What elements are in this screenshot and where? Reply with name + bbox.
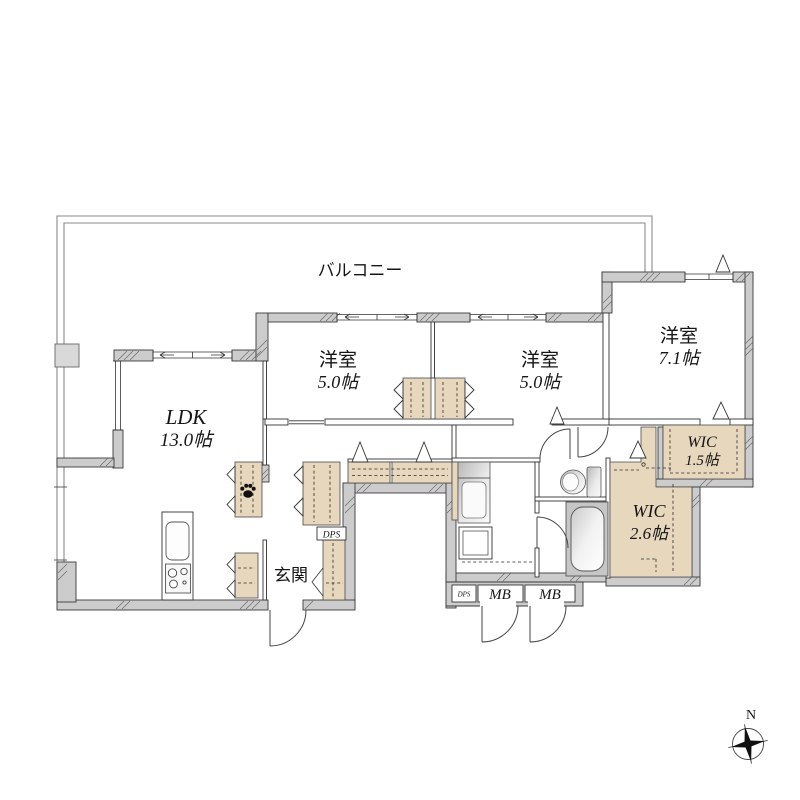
genkan-storage: [323, 540, 345, 600]
room3-size-label: 7.1帖: [659, 348, 703, 368]
entrance-door-arc: [270, 610, 306, 646]
compass-needle-icon: [725, 721, 771, 767]
stove: [166, 564, 191, 593]
room1-closet: [403, 378, 431, 419]
hall-closet-right: [392, 462, 452, 483]
mb2-label: MB: [538, 587, 561, 603]
bath-door-arc: [537, 517, 568, 548]
genkan-storage-doors: [312, 568, 323, 596]
wic2-size-label: 2.6帖: [630, 524, 671, 543]
window-room1-north: [337, 313, 417, 322]
washer-pan: [459, 527, 492, 559]
dps-meter-label: DPS: [457, 591, 471, 599]
floor-plan-drawing: バルコニー LDK 13.0帖 洋室 5.0帖 洋室 5.0帖 洋室 7.1帖 …: [0, 0, 800, 800]
room3-label: 洋室: [660, 325, 698, 347]
kitchen-sink: [166, 522, 189, 560]
room1-size-label: 5.0帖: [318, 372, 362, 392]
washroom-door-arc: [540, 429, 570, 459]
room2-label: 洋室: [521, 349, 559, 371]
compass-n-label: N: [746, 708, 756, 723]
ldk-label: LDK: [165, 405, 208, 429]
pet-cabinet: [235, 462, 262, 517]
bathtub: [566, 502, 608, 576]
dps-hall-label: DPS: [322, 531, 341, 541]
vanity-side-panel: [452, 462, 458, 520]
mb-door-arc-2: [530, 606, 566, 642]
wic1-size-label: 1.5帖: [685, 452, 721, 469]
balcony-label: バルコニー: [318, 261, 403, 280]
window-ldk-north: [153, 350, 232, 361]
room2-size-label: 5.0帖: [520, 372, 564, 392]
ldk-size-label: 13.0帖: [160, 430, 215, 451]
left-window-ticks: [54, 487, 67, 560]
toilet: [561, 467, 602, 497]
compass: [725, 721, 771, 767]
vanity-basin: [462, 482, 486, 518]
window-room2-north: [470, 313, 546, 322]
window-room3-north: [685, 272, 733, 282]
sliding-door-lines: [289, 421, 324, 424]
room2-closet: [435, 378, 465, 419]
floor-plan: バルコニー LDK 13.0帖 洋室 5.0帖 洋室 5.0帖 洋室 7.1帖 …: [0, 0, 800, 800]
mb-door-arc-1: [482, 606, 518, 642]
window-ldk-west: [113, 361, 123, 430]
room1-label: 洋室: [319, 349, 357, 371]
genkan-label: 玄関: [274, 566, 308, 585]
room3-door-arc: [578, 427, 608, 457]
shoe-cabinet: [235, 553, 258, 598]
mb1-label: MB: [488, 587, 511, 603]
wic1-label: WIC: [687, 434, 717, 451]
balcony-partition: [55, 344, 79, 367]
wic2-label: WIC: [633, 501, 667, 521]
sanitary: [458, 462, 608, 576]
hallway-storage: [303, 462, 340, 525]
hall-closet-left: [348, 462, 390, 483]
